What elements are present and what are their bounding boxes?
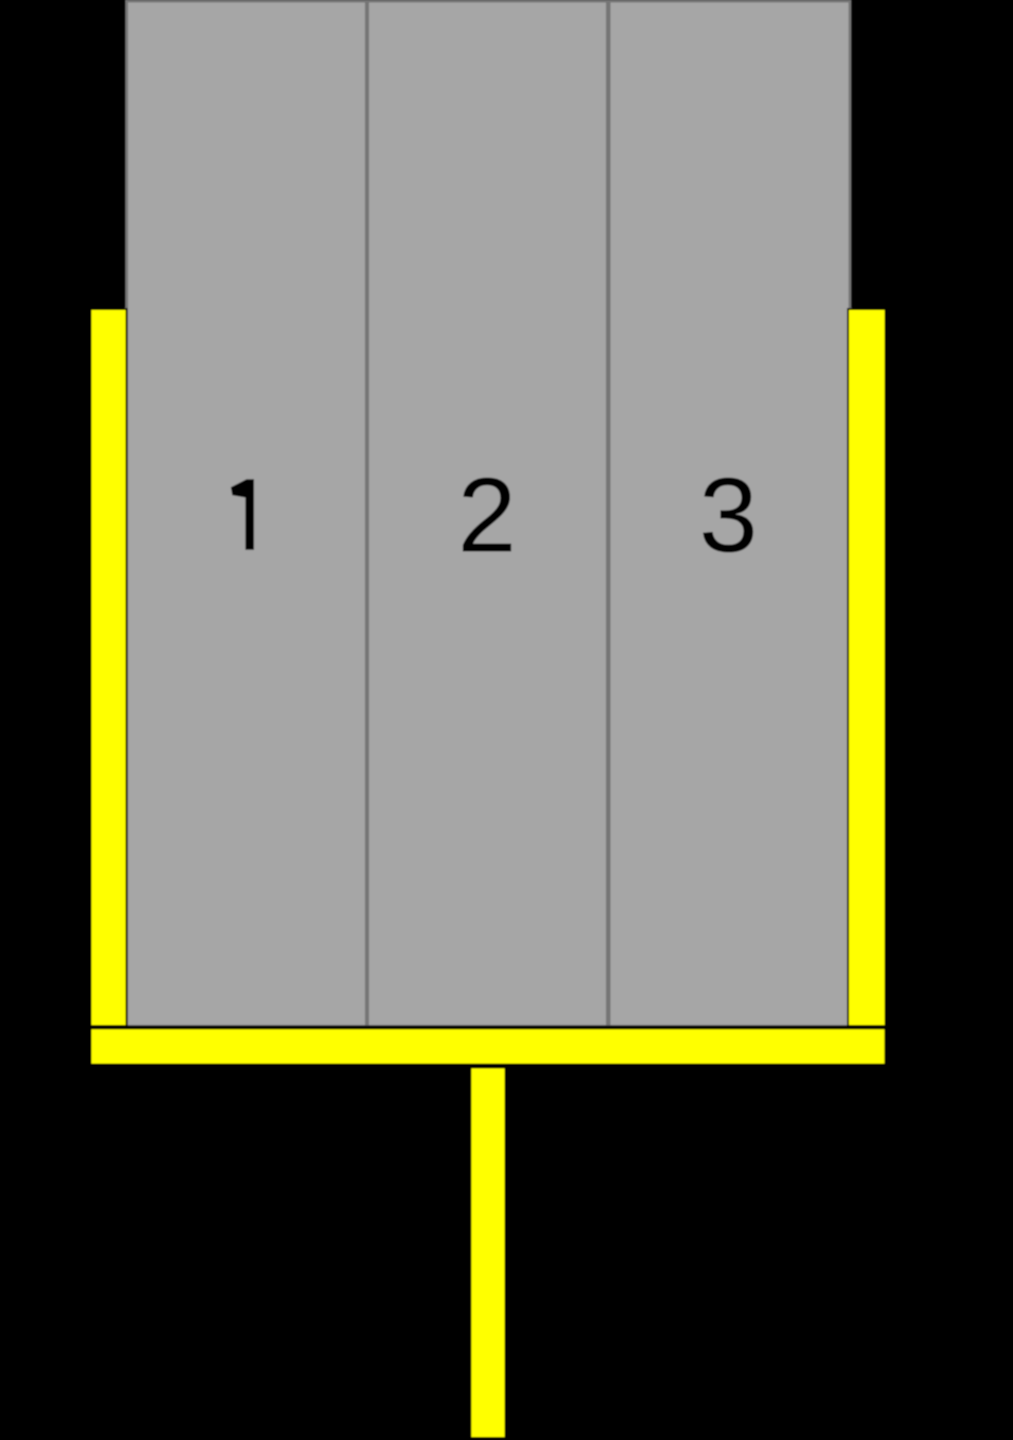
svg-text:3: 3	[699, 457, 758, 575]
svg-text:2: 2	[458, 457, 517, 575]
